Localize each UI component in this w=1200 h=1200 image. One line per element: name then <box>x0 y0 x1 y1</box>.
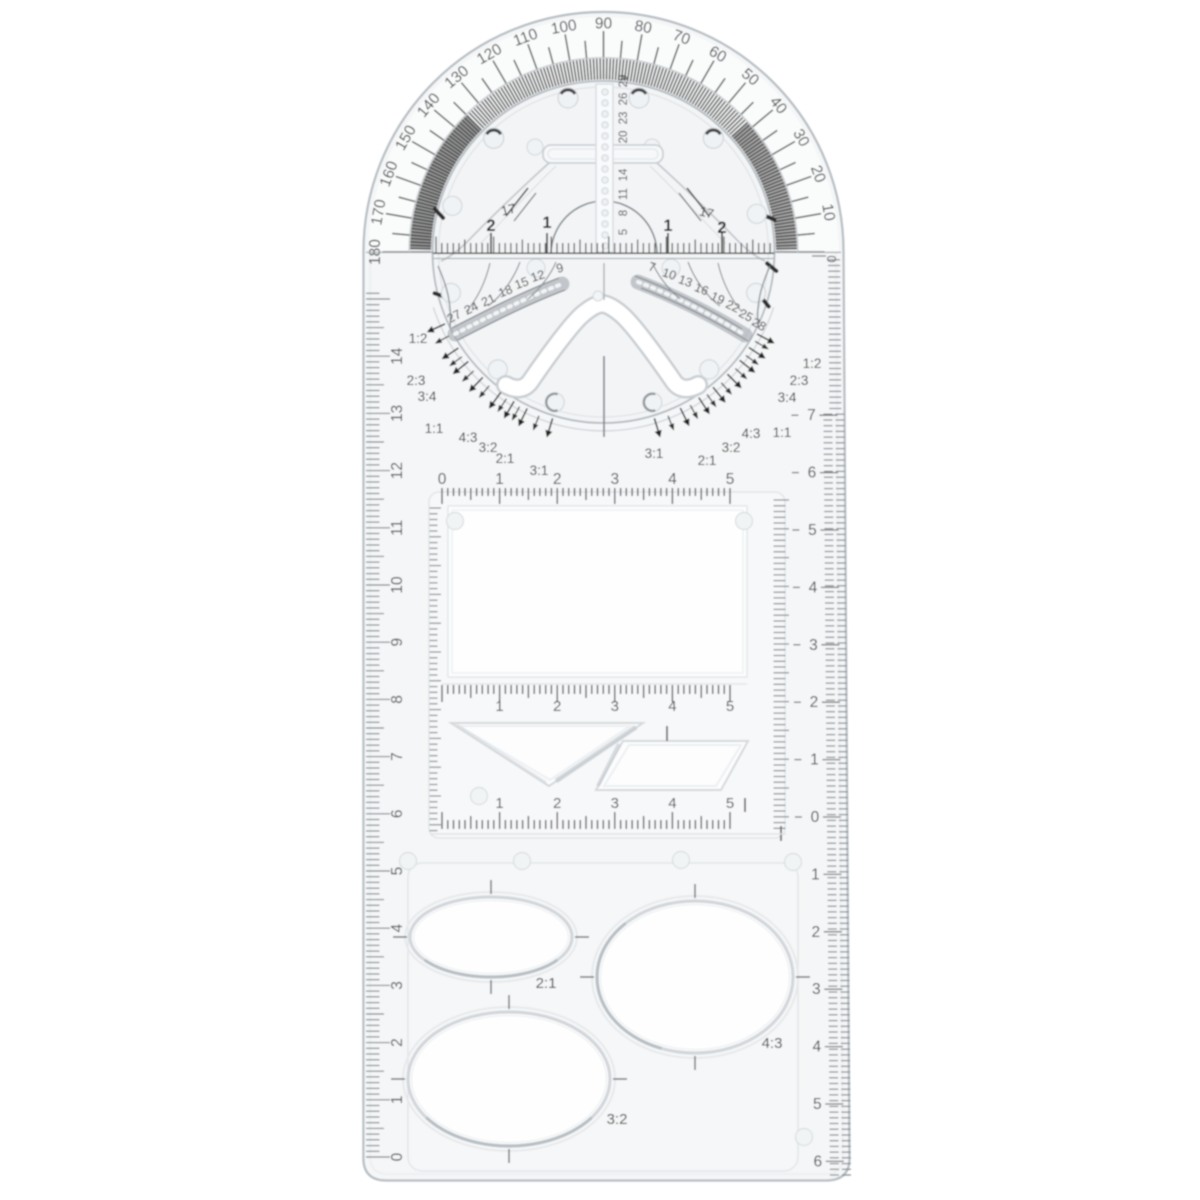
svg-text:3: 3 <box>611 795 619 812</box>
svg-text:1:1: 1:1 <box>773 425 792 440</box>
svg-text:7: 7 <box>807 407 816 424</box>
svg-text:2: 2 <box>553 471 562 488</box>
svg-text:0: 0 <box>389 1152 406 1161</box>
svg-text:6: 6 <box>808 465 817 482</box>
svg-text:20: 20 <box>618 131 630 144</box>
svg-text:2: 2 <box>389 1038 406 1047</box>
svg-text:2:1: 2:1 <box>698 453 717 468</box>
svg-text:3:2: 3:2 <box>722 440 741 455</box>
svg-text:1: 1 <box>495 471 504 488</box>
svg-text:1: 1 <box>663 217 672 235</box>
svg-text:7: 7 <box>389 752 406 761</box>
svg-text:5: 5 <box>808 522 817 539</box>
svg-text:11: 11 <box>618 188 630 200</box>
svg-text:1:1: 1:1 <box>425 421 444 436</box>
svg-text:3: 3 <box>610 471 619 488</box>
svg-text:4: 4 <box>668 471 677 488</box>
svg-text:2:3: 2:3 <box>407 373 426 388</box>
svg-text:2:1: 2:1 <box>496 451 515 466</box>
svg-text:1: 1 <box>389 1095 406 1104</box>
svg-text:4:3: 4:3 <box>742 426 761 441</box>
svg-text:2:1: 2:1 <box>536 975 557 992</box>
svg-text:4: 4 <box>668 795 676 812</box>
svg-text:5: 5 <box>726 795 734 812</box>
svg-text:14: 14 <box>618 168 630 181</box>
svg-text:1: 1 <box>810 752 819 769</box>
svg-text:4:3: 4:3 <box>762 1035 783 1052</box>
svg-text:6: 6 <box>389 809 406 818</box>
svg-text:1: 1 <box>495 698 503 715</box>
svg-text:2: 2 <box>486 217 495 235</box>
svg-text:29: 29 <box>618 75 630 88</box>
svg-text:14: 14 <box>389 347 406 365</box>
svg-text:3:2: 3:2 <box>479 440 498 455</box>
svg-text:5: 5 <box>726 471 735 488</box>
svg-text:4: 4 <box>809 579 818 596</box>
svg-text:0: 0 <box>811 809 820 826</box>
svg-text:6: 6 <box>813 1153 822 1170</box>
svg-text:23: 23 <box>618 112 630 125</box>
svg-text:1: 1 <box>542 214 551 232</box>
svg-text:3:4: 3:4 <box>778 390 797 405</box>
svg-text:26: 26 <box>618 93 630 106</box>
svg-text:3: 3 <box>389 981 406 990</box>
svg-text:4: 4 <box>668 698 676 715</box>
svg-text:4: 4 <box>812 1039 821 1056</box>
svg-text:8: 8 <box>618 210 630 216</box>
svg-text:5: 5 <box>813 1096 822 1113</box>
svg-text:3: 3 <box>812 981 821 998</box>
svg-text:80: 80 <box>633 18 653 38</box>
svg-text:5: 5 <box>726 698 734 715</box>
svg-text:5: 5 <box>618 229 630 235</box>
svg-text:3:4: 3:4 <box>418 389 437 404</box>
svg-text:3:1: 3:1 <box>645 446 664 461</box>
svg-text:2: 2 <box>811 924 820 941</box>
svg-text:0: 0 <box>438 471 447 488</box>
svg-text:1:2: 1:2 <box>409 331 428 346</box>
svg-text:10: 10 <box>389 576 406 594</box>
svg-text:4: 4 <box>389 924 406 933</box>
svg-text:8: 8 <box>389 695 406 704</box>
svg-text:1: 1 <box>811 866 820 883</box>
svg-text:2:3: 2:3 <box>790 373 809 388</box>
svg-text:3:1: 3:1 <box>530 463 549 478</box>
svg-text:3: 3 <box>809 637 818 654</box>
svg-text:2: 2 <box>553 795 561 812</box>
svg-text:4:3: 4:3 <box>459 430 478 445</box>
svg-text:0: 0 <box>824 255 839 262</box>
svg-text:3:2: 3:2 <box>607 1111 628 1128</box>
svg-text:10: 10 <box>818 202 838 222</box>
svg-text:12: 12 <box>389 462 406 479</box>
svg-text:11: 11 <box>389 520 406 536</box>
svg-text:2: 2 <box>553 698 561 715</box>
svg-text:2: 2 <box>810 694 819 711</box>
svg-text:1: 1 <box>495 795 503 812</box>
svg-text:13: 13 <box>389 405 406 422</box>
svg-text:3: 3 <box>611 698 619 715</box>
svg-text:9: 9 <box>389 638 406 647</box>
svg-text:1:2: 1:2 <box>803 356 822 371</box>
svg-text:90: 90 <box>595 16 613 33</box>
